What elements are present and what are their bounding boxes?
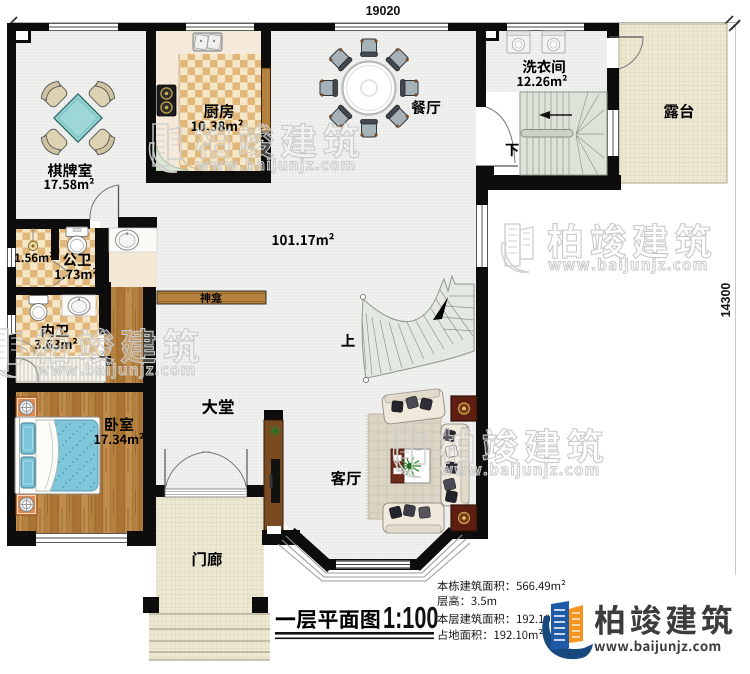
svg-text:1:100: 1:100 xyxy=(383,600,438,635)
svg-text:19020: 19020 xyxy=(366,4,401,18)
svg-text:14300: 14300 xyxy=(719,283,733,318)
